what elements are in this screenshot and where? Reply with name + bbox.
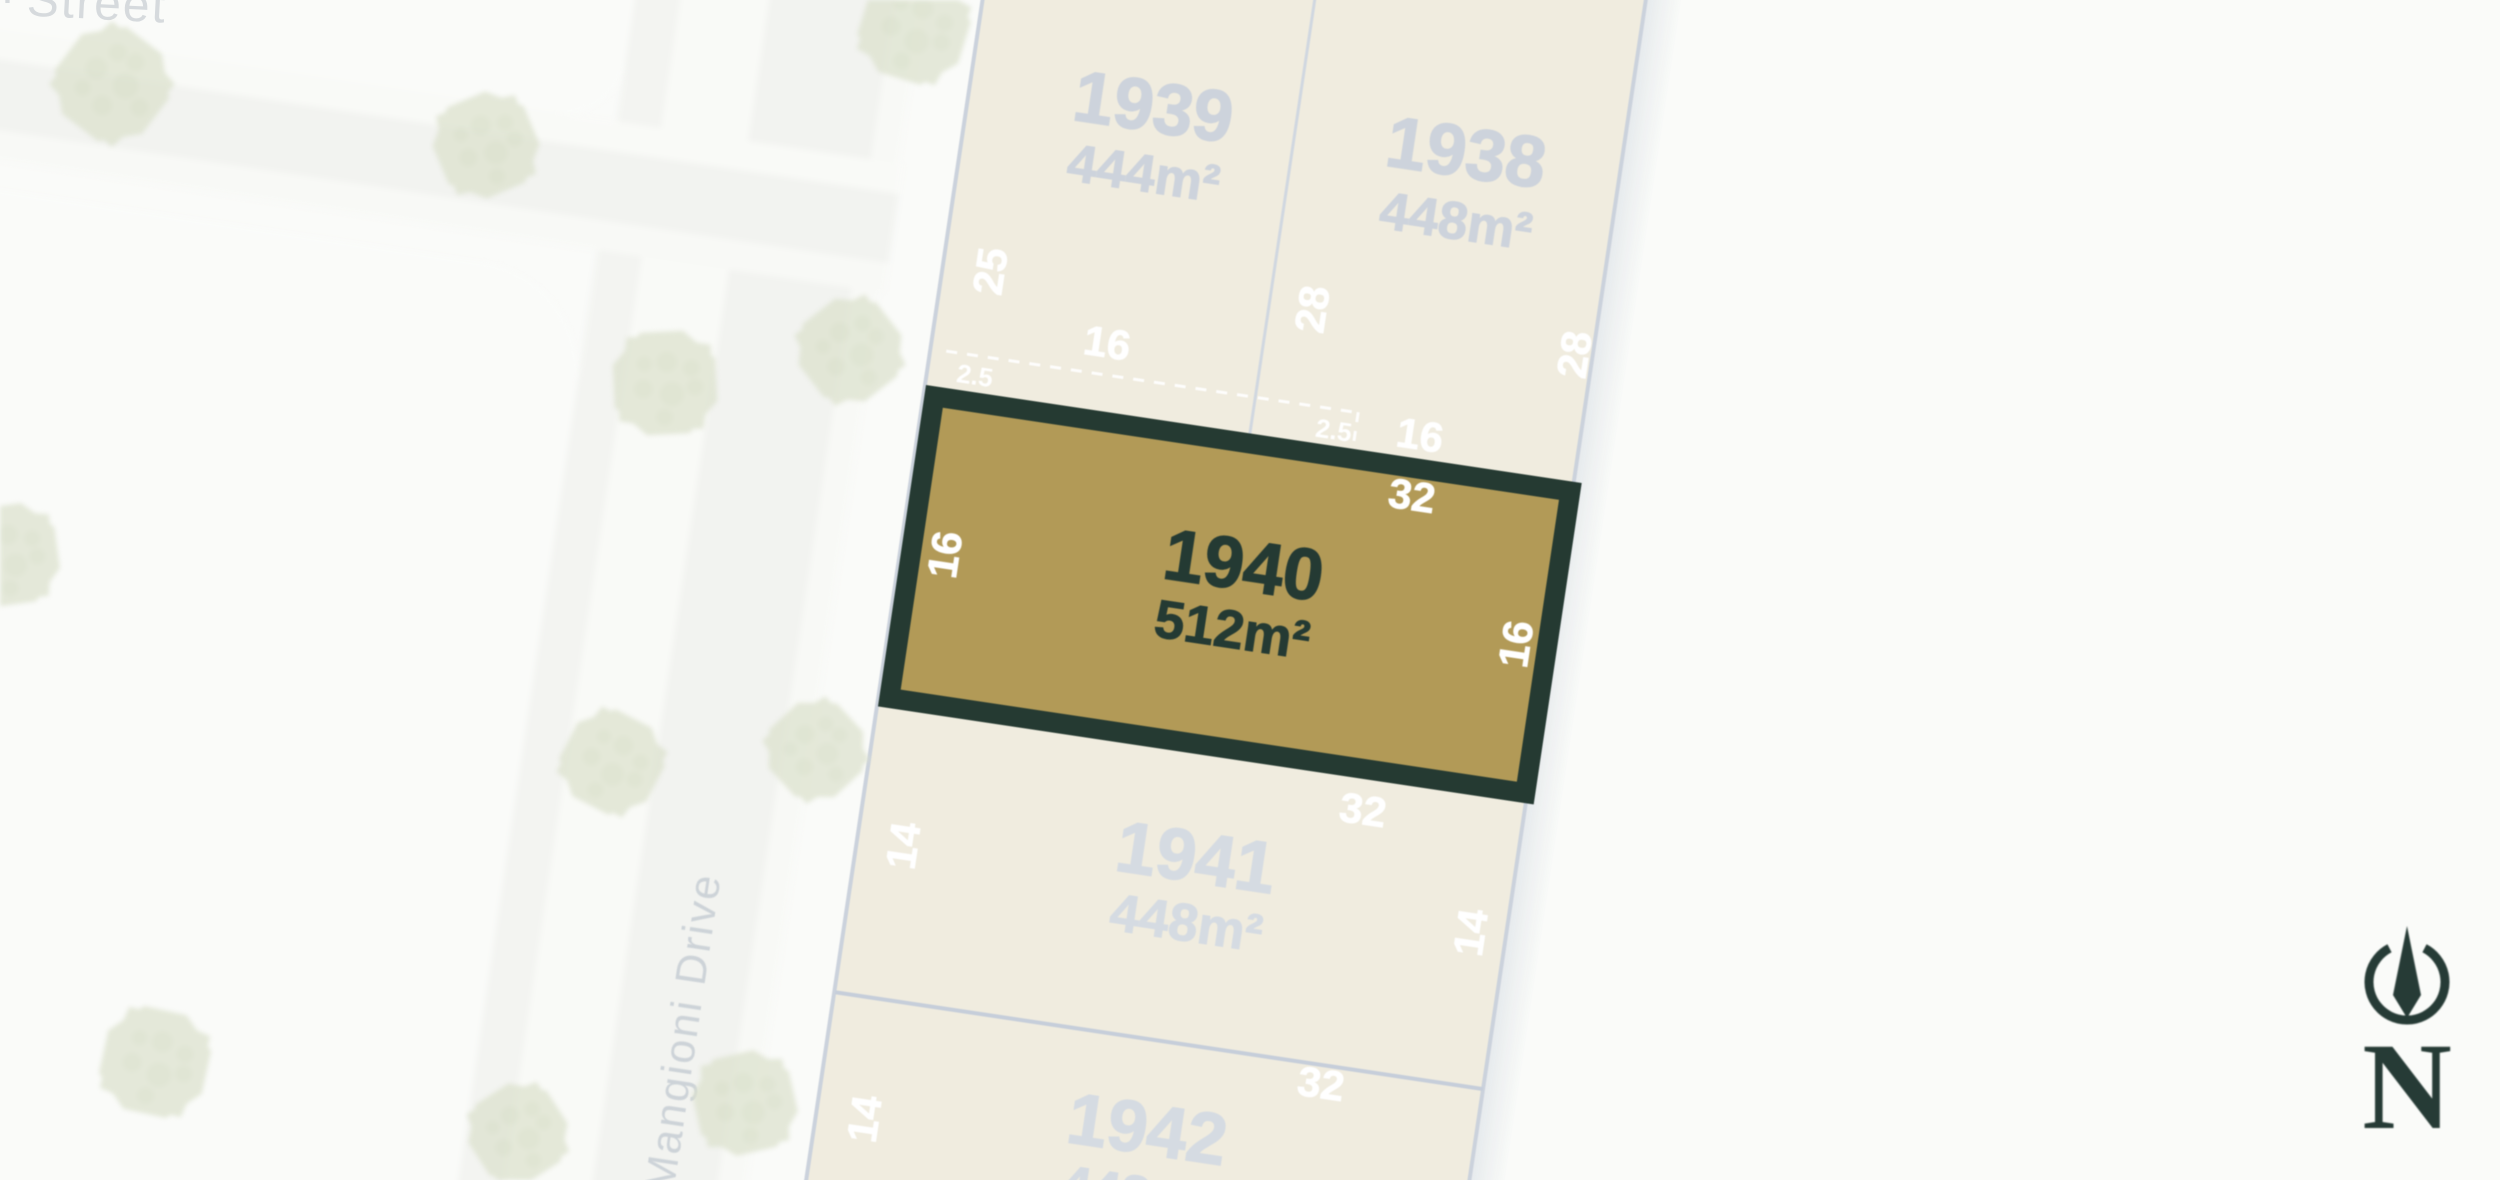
svg-text:N: N xyxy=(2362,1018,2452,1155)
